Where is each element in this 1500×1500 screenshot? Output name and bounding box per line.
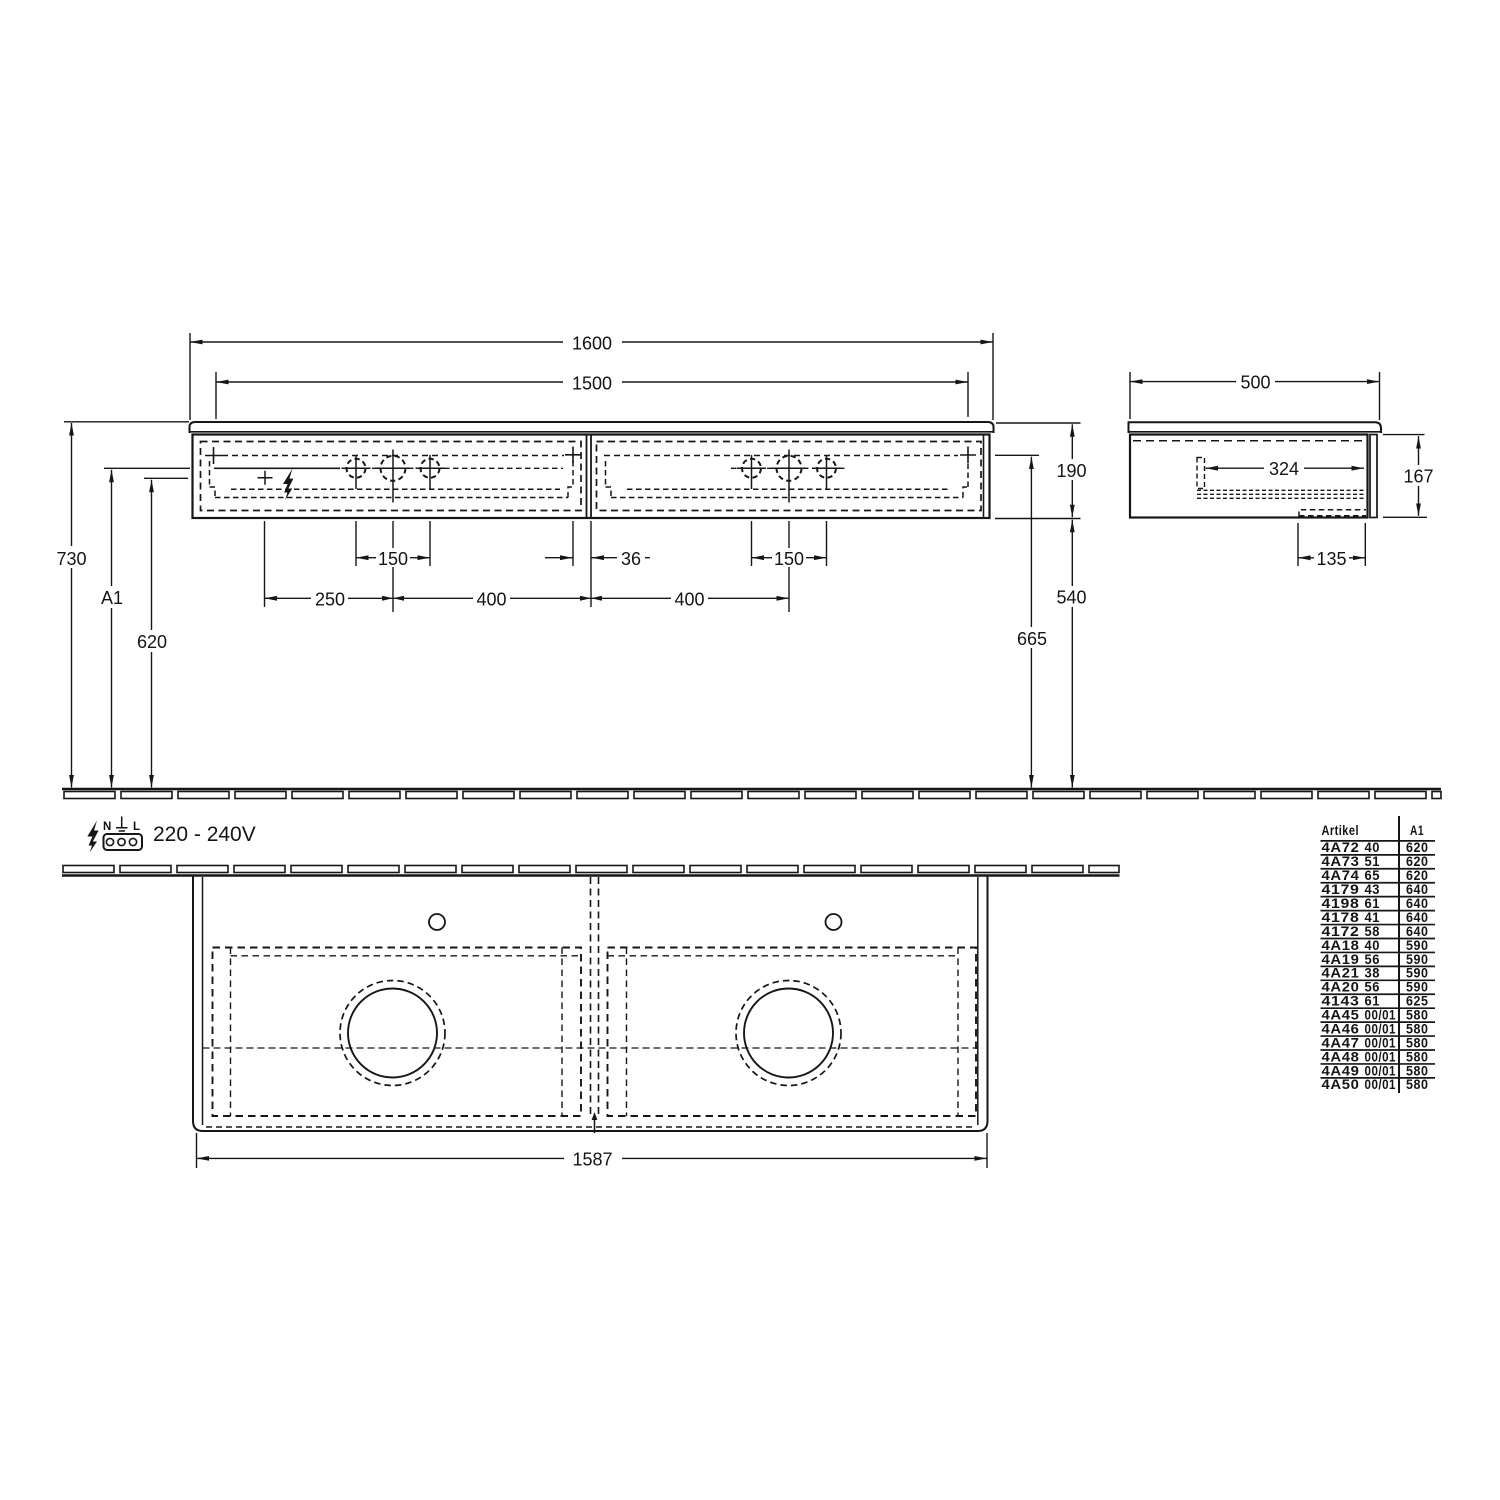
svg-text:135: 135 [1316,549,1346,569]
svg-text:00/01: 00/01 [1365,1076,1397,1092]
svg-text:1500: 1500 [572,374,612,394]
svg-text:36: 36 [621,549,641,569]
svg-text:A1: A1 [1410,822,1424,838]
svg-text:A1: A1 [101,588,123,608]
svg-text:250: 250 [315,590,345,610]
svg-text:4A50: 4A50 [1322,1076,1360,1092]
svg-text:580: 580 [1406,1076,1429,1092]
svg-text:L: L [133,821,140,833]
svg-text:540: 540 [1056,588,1086,608]
svg-text:620: 620 [137,632,167,652]
svg-text:220 - 240V: 220 - 240V [153,823,256,846]
svg-text:400: 400 [476,590,506,610]
svg-text:665: 665 [1017,629,1047,649]
svg-text:730: 730 [56,549,86,569]
svg-text:500: 500 [1240,373,1270,393]
svg-text:190: 190 [1056,461,1086,481]
svg-text:1587: 1587 [572,1150,612,1170]
svg-text:150: 150 [378,549,408,569]
svg-text:N: N [103,821,111,833]
svg-text:400: 400 [674,590,704,610]
svg-text:Artikel: Artikel [1322,822,1360,838]
svg-text:167: 167 [1403,467,1433,487]
svg-text:150: 150 [774,549,804,569]
svg-text:324: 324 [1269,459,1299,479]
svg-text:1600: 1600 [572,334,612,354]
